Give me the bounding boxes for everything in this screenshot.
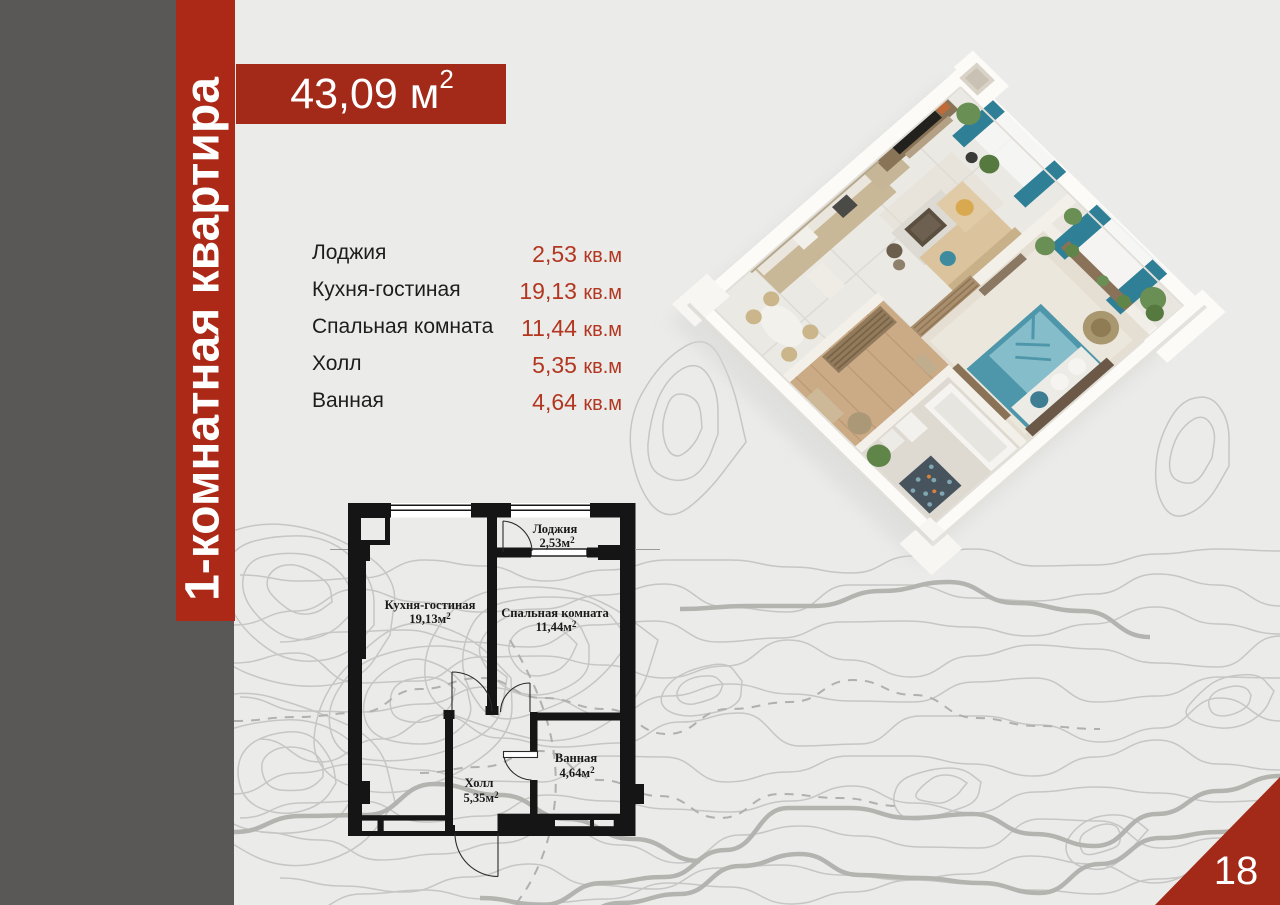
svg-text:18: 18 [1214, 849, 1259, 893]
